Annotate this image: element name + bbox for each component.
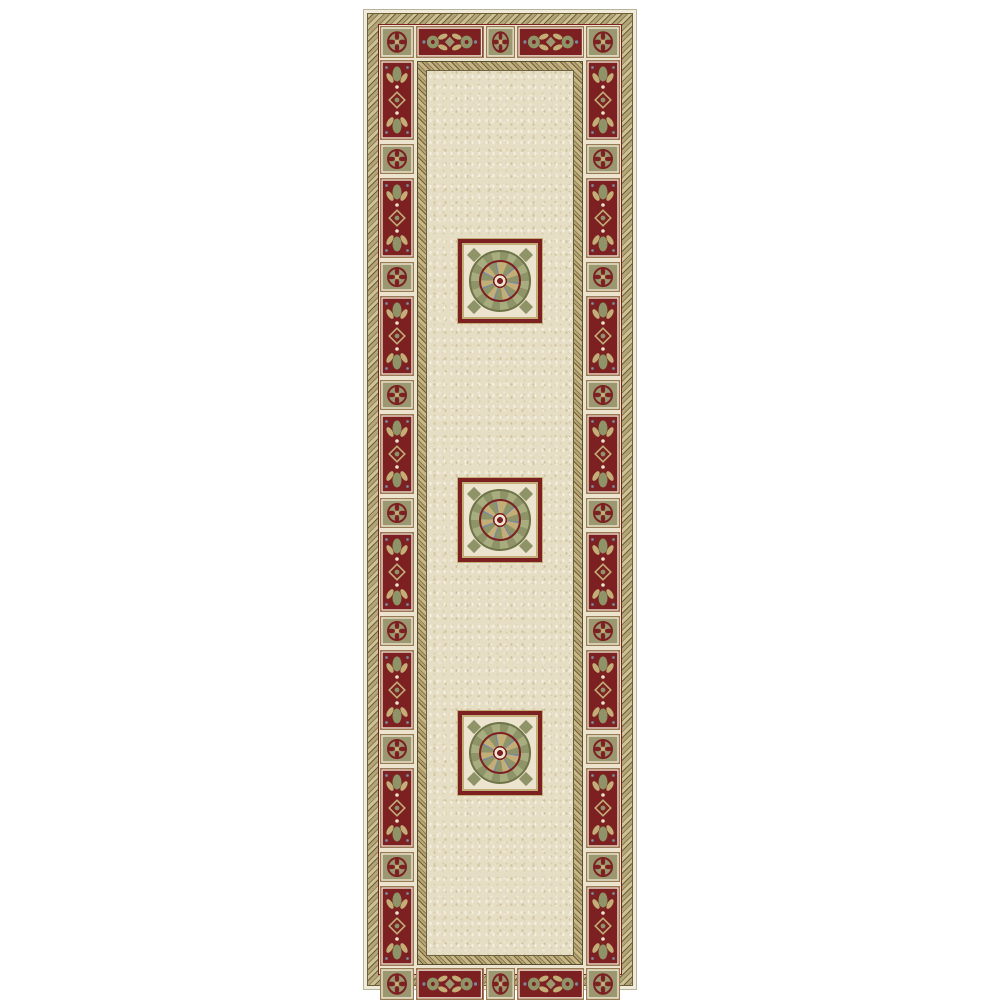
border-tile-corner-square [587,27,619,57]
border-tile-red-vertical [381,179,413,257]
border-tile-square-rosette [587,145,619,173]
border-tile-square-rosette [587,499,619,527]
border-tile-square-rosette [587,617,619,645]
border-tile-square-rosette [381,499,413,527]
rug-medallion-2 [458,478,542,562]
medallion-rosette [479,499,521,541]
rug-image [363,9,637,990]
rug-medallion-3 [458,711,542,795]
border-tile-square-rosette [587,853,619,881]
rug-tile-border [381,27,619,972]
border-row-top [417,27,583,57]
border-tile-square-rosette [381,853,413,881]
border-tile-wide-red [518,27,584,57]
border-tile-square-rosette [487,27,514,57]
border-tile-red-vertical [587,415,619,493]
border-tile-square-rosette [381,735,413,763]
border-tile-square-rosette [587,735,619,763]
border-tile-red-vertical [587,887,619,965]
border-tile-red-vertical [381,651,413,729]
border-tile-red-vertical [381,297,413,375]
border-tile-square-rosette [381,263,413,291]
medallion-rosette [479,732,521,774]
border-tile-square-rosette [381,617,413,645]
border-tile-red-vertical [587,297,619,375]
medallion-ring [469,250,531,312]
border-tile-red-vertical [381,415,413,493]
border-tile-wide-red [417,969,483,999]
border-tile-red-vertical [587,179,619,257]
rug-inner-guard-band [417,61,583,965]
border-tile-red-vertical [381,769,413,847]
border-tile-red-vertical [587,769,619,847]
border-tile-corner-square [381,27,413,57]
border-tile-square-rosette [487,969,514,999]
border-column-left [381,61,413,965]
border-tile-square-rosette [381,145,413,173]
rug-medallion-1 [458,239,542,323]
border-tile-wide-red [518,969,584,999]
border-tile-square-rosette [587,263,619,291]
border-tile-red-vertical [587,651,619,729]
border-tile-square-rosette [381,381,413,409]
border-tile-red-vertical [587,533,619,611]
border-tile-red-vertical [381,887,413,965]
border-row-bottom [417,969,583,999]
border-tile-corner-square [587,969,619,999]
rug-field [426,70,574,956]
border-tile-wide-red [417,27,483,57]
product-photo-canvas [0,0,1000,1000]
border-tile-corner-square [381,969,413,999]
border-tile-red-vertical [381,61,413,139]
border-tile-red-vertical [381,533,413,611]
border-tile-red-vertical [587,61,619,139]
border-column-right [587,61,619,965]
border-tile-square-rosette [587,381,619,409]
medallion-rosette [479,260,521,302]
